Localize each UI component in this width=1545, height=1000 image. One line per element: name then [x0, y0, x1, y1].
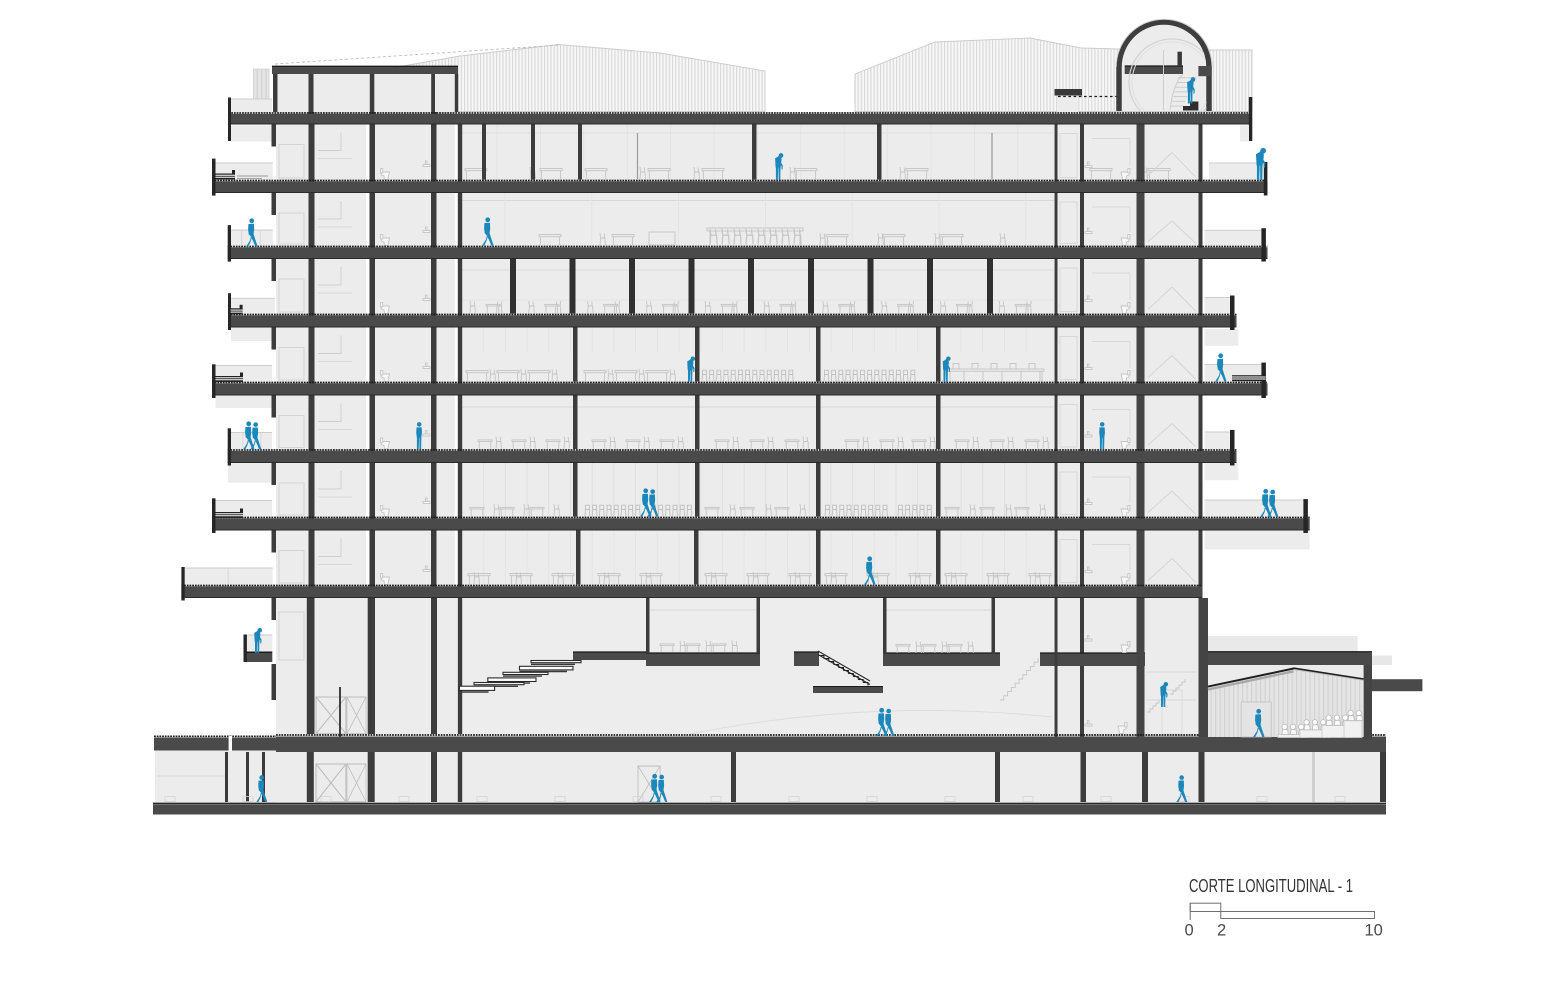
svg-text:10: 10 [1365, 922, 1383, 940]
svg-text:CORTE LONGITUDINAL - 1: CORTE LONGITUDINAL - 1 [1189, 875, 1353, 896]
svg-text:2: 2 [1217, 922, 1226, 940]
svg-text:0: 0 [1185, 922, 1194, 940]
